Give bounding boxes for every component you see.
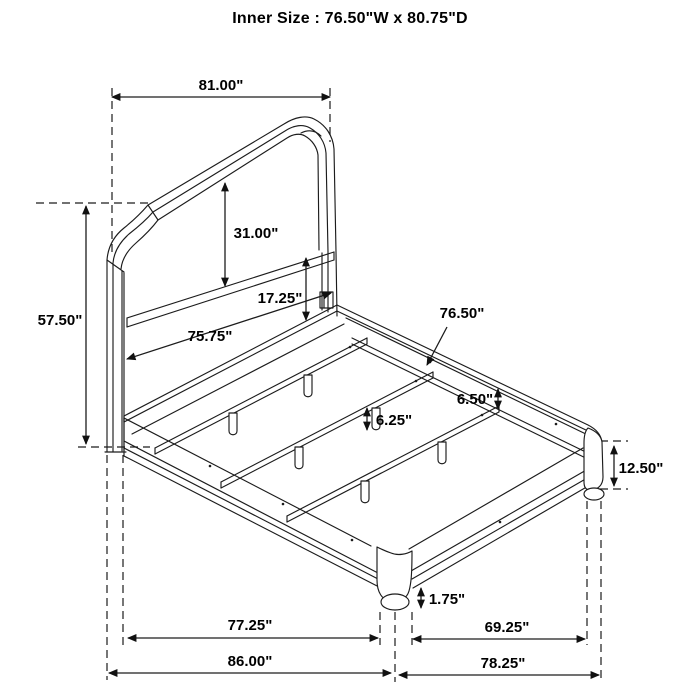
- dim-frame-depth: 77.25": [228, 617, 273, 634]
- right-corner-post: [584, 428, 603, 490]
- footboard: [377, 428, 604, 610]
- extension-lines: [36, 88, 628, 682]
- dim-overall-width: 78.25": [481, 655, 526, 672]
- slat-leg: [304, 375, 312, 397]
- dim-slat-width: 76.50": [440, 305, 485, 322]
- dim-panel-gap: 17.25": [258, 290, 303, 307]
- dim-headboard-inner-width: 75.75": [188, 328, 233, 345]
- dim-panel-height: 31.00": [234, 225, 279, 242]
- dim-headboard-width: 81.00": [199, 77, 244, 94]
- dimension-labels: 81.00" 57.50" 31.00" 17.25" 75.75" 76.50…: [38, 77, 664, 672]
- slat-leg: [438, 442, 446, 464]
- right-foot: [584, 488, 604, 500]
- front-foot: [381, 594, 409, 610]
- bed-line-drawing: 81.00" 57.50" 31.00" 17.25" 75.75" 76.50…: [0, 0, 700, 700]
- slats: [155, 338, 499, 522]
- dimension-lines: [86, 97, 614, 675]
- headboard: [105, 117, 337, 452]
- bed-dimension-diagram-page: Inner Size : 76.50"W x 80.75"D: [0, 0, 700, 700]
- dim-rail-cleat: 6.50": [457, 391, 493, 408]
- slat-leg: [229, 413, 237, 435]
- dim-side-rail-height: 12.50": [619, 460, 664, 477]
- slat-leg: [361, 481, 369, 503]
- dim-total-height: 57.50": [38, 312, 83, 329]
- slat-leg: [295, 447, 303, 469]
- dim-leg-height: 6.25": [376, 412, 412, 429]
- dim-footboard-inner-width: 69.25": [485, 619, 530, 636]
- dim-foot-height: 1.75": [429, 591, 465, 608]
- dim-overall-depth: 86.00": [228, 653, 273, 670]
